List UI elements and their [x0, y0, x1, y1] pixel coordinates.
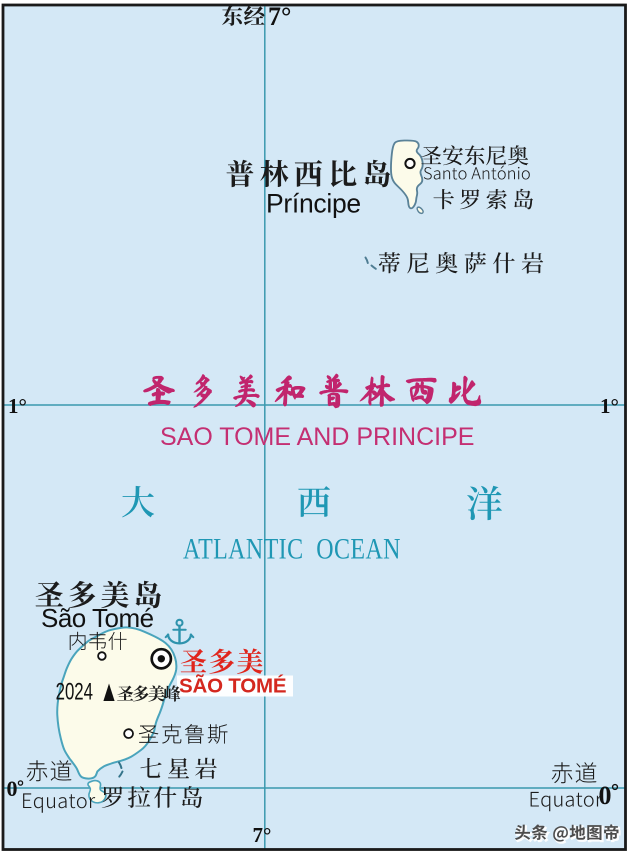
svg-text:2024: 2024 [56, 679, 93, 706]
svg-text:Príncipe: Príncipe [266, 189, 361, 219]
svg-text:SÃO TOMÉ: SÃO TOMÉ [179, 675, 286, 698]
svg-text:7°: 7° [268, 2, 291, 31]
svg-text:1°: 1° [600, 394, 619, 418]
svg-text:7°: 7° [253, 823, 272, 847]
svg-text:ATLANTIC OCEAN: ATLANTIC OCEAN [183, 532, 401, 565]
svg-text:São Tomé: São Tomé [41, 603, 154, 633]
svg-text:0: 0 [7, 776, 18, 801]
svg-text:SAO TOME AND PRINCIPE: SAO TOME AND PRINCIPE [160, 423, 474, 451]
svg-text:1°: 1° [8, 394, 27, 418]
svg-text:0: 0 [599, 781, 612, 810]
